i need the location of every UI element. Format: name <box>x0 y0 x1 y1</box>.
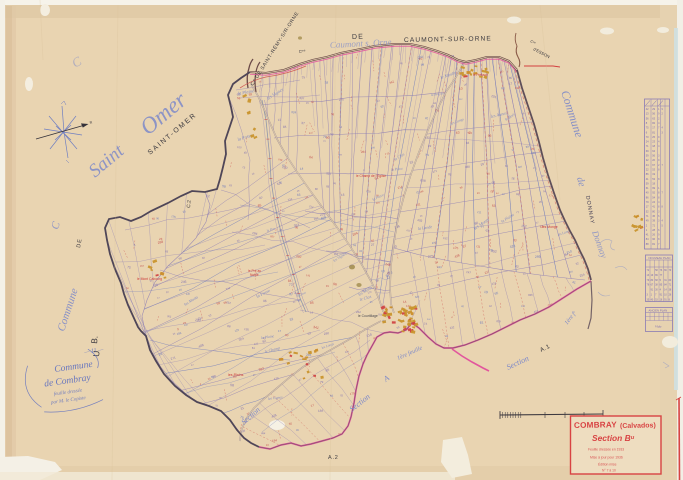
svg-text:388: 388 <box>465 165 471 169</box>
svg-text:Section Bᵘ: Section Bᵘ <box>592 433 635 443</box>
svg-text:16: 16 <box>351 212 355 216</box>
svg-text:195: 195 <box>244 327 250 332</box>
svg-text:18: 18 <box>341 193 345 197</box>
svg-text:325: 325 <box>496 319 501 323</box>
svg-text:152: 152 <box>443 236 448 240</box>
svg-text:Feuille dressée en 1933: Feuille dressée en 1933 <box>588 448 624 452</box>
svg-text:23: 23 <box>159 237 163 241</box>
svg-text:Vidu: Vidu <box>655 325 662 329</box>
svg-text:NOUVEAU PLAN: NOUVEAU PLAN <box>649 256 671 260</box>
svg-text:23: 23 <box>531 147 535 151</box>
svg-text:Édition mise: Édition mise <box>598 462 617 467</box>
svg-text:247: 247 <box>466 270 472 275</box>
svg-text:96: 96 <box>333 282 337 286</box>
svg-text:53: 53 <box>492 204 496 208</box>
svg-text:22: 22 <box>428 144 432 148</box>
svg-text:Cᵐᵉ: Cᵐᵉ <box>298 48 306 54</box>
svg-text:les Monge: les Monge <box>542 225 558 229</box>
svg-text:184: 184 <box>272 438 278 443</box>
svg-text:295: 295 <box>535 255 541 259</box>
svg-text:211: 211 <box>477 210 482 214</box>
svg-text:284: 284 <box>361 150 367 154</box>
svg-text:COMBRAY: COMBRAY <box>574 420 617 430</box>
svg-text:27: 27 <box>371 243 375 247</box>
svg-text:63: 63 <box>297 193 301 197</box>
svg-text:249: 249 <box>437 265 442 269</box>
svg-text:279: 279 <box>320 213 326 217</box>
svg-text:416: 416 <box>387 271 393 275</box>
svg-text:84: 84 <box>283 125 287 129</box>
svg-text:C.2: C.2 <box>186 200 193 208</box>
svg-text:152: 152 <box>521 224 527 228</box>
svg-text:17: 17 <box>278 329 282 333</box>
svg-text:Mise à jour pour 1936: Mise à jour pour 1936 <box>590 456 623 460</box>
svg-text:221: 221 <box>416 202 422 207</box>
svg-text:A.2: A.2 <box>328 455 339 461</box>
svg-text:188: 188 <box>531 151 536 155</box>
svg-text:58: 58 <box>230 383 234 388</box>
svg-text:le Champ de l’Eglise: le Champ de l’Eglise <box>356 174 386 178</box>
svg-text:79: 79 <box>323 135 327 139</box>
svg-text:85: 85 <box>310 301 314 305</box>
svg-text:63: 63 <box>456 130 460 134</box>
svg-text:ANCIEN PLAN: ANCIEN PLAN <box>649 309 668 313</box>
svg-text:184: 184 <box>318 409 324 413</box>
svg-text:73: 73 <box>289 283 293 287</box>
svg-text:10: 10 <box>381 269 385 273</box>
svg-text:84: 84 <box>288 279 292 283</box>
svg-text:275: 275 <box>428 254 434 259</box>
svg-text:41: 41 <box>445 334 449 338</box>
svg-text:N° 7 à 10: N° 7 à 10 <box>602 469 616 473</box>
svg-text:B.: B. <box>89 335 100 344</box>
svg-text:(Calvados): (Calvados) <box>620 422 656 430</box>
svg-text:41: 41 <box>279 228 283 232</box>
svg-text:175: 175 <box>453 246 459 250</box>
svg-text:246: 246 <box>181 280 187 284</box>
svg-text:324: 324 <box>291 110 297 115</box>
svg-text:le Courtillage: le Courtillage <box>358 314 378 318</box>
svg-text:10: 10 <box>459 86 463 91</box>
svg-text:97: 97 <box>259 196 263 200</box>
svg-text:96: 96 <box>263 299 267 303</box>
svg-text:17: 17 <box>478 285 482 289</box>
svg-text:337: 337 <box>299 96 305 100</box>
svg-text:336: 336 <box>528 293 533 297</box>
svg-text:19: 19 <box>484 290 488 294</box>
svg-text:79: 79 <box>320 380 324 384</box>
svg-text:275: 275 <box>339 97 345 102</box>
svg-text:les Plains: les Plains <box>228 373 244 377</box>
svg-text:394: 394 <box>261 431 266 435</box>
svg-text:le Mont Cabourg: le Mont Cabourg <box>137 277 162 281</box>
svg-text:37: 37 <box>301 121 305 125</box>
svg-text:84: 84 <box>466 141 470 145</box>
svg-text:Noble: Noble <box>250 273 259 277</box>
svg-text:le Pressoir: le Pressoir <box>473 73 489 77</box>
svg-text:293: 293 <box>195 318 201 322</box>
svg-text:56: 56 <box>330 394 334 398</box>
svg-text:110: 110 <box>521 305 526 308</box>
svg-text:12: 12 <box>206 194 210 198</box>
